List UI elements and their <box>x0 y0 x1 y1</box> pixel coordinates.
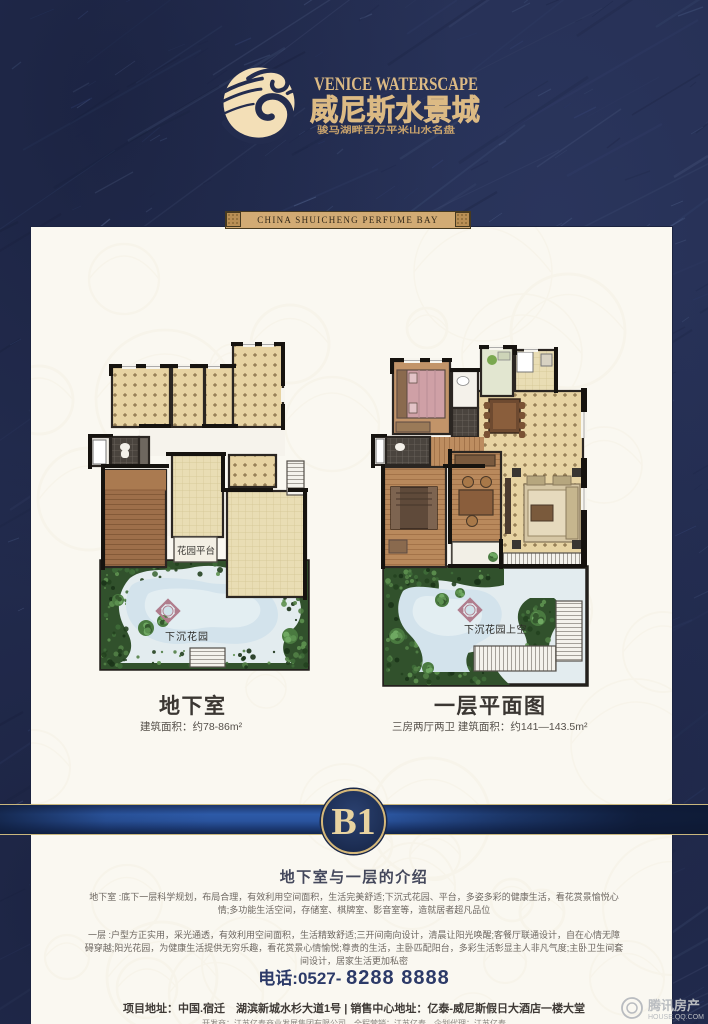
svg-text:下沉花园上空: 下沉花园上空 <box>464 623 527 636</box>
